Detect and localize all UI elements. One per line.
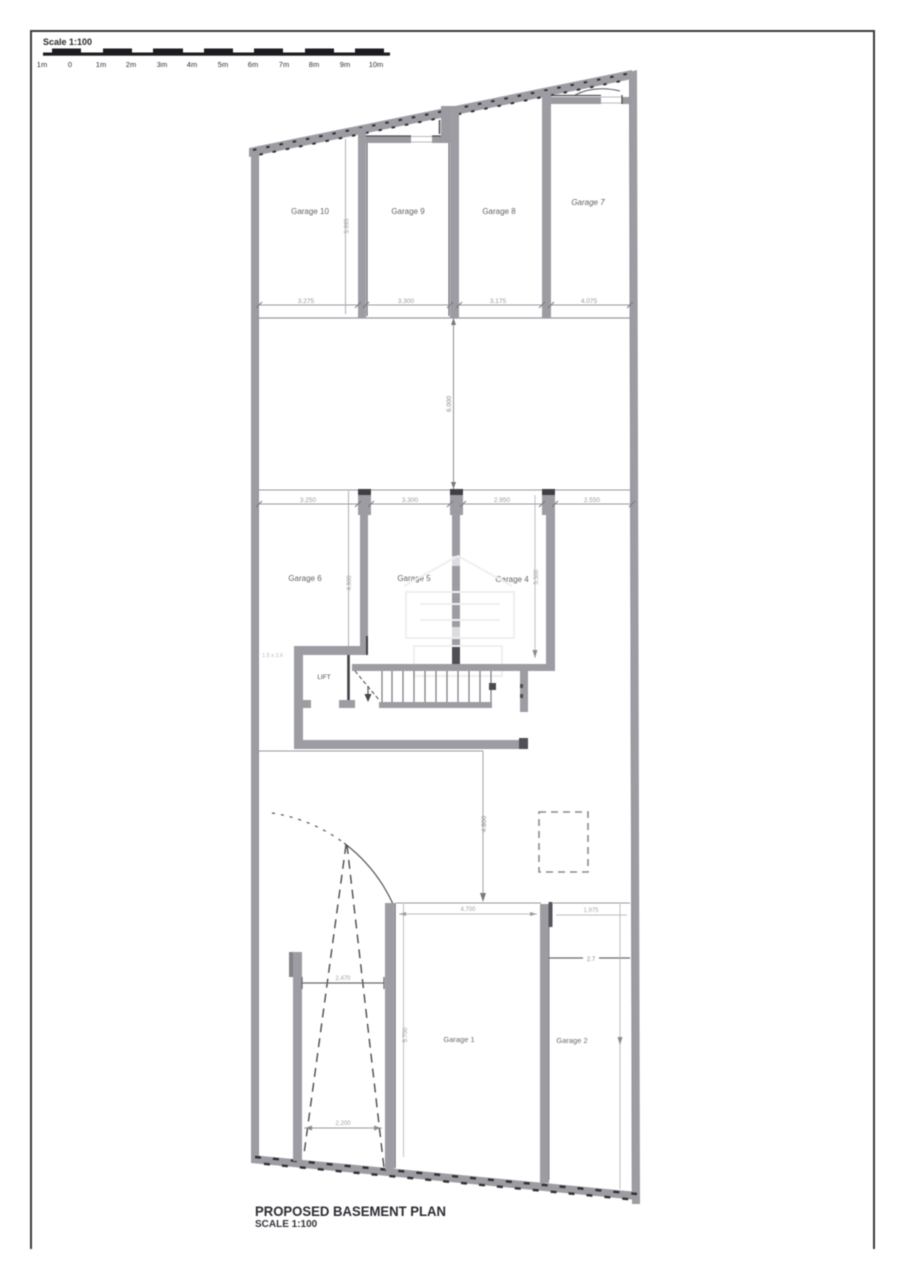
- svg-text:Garage 5: Garage 5: [397, 574, 431, 583]
- svg-text:1.975: 1.975: [583, 908, 599, 914]
- svg-text:2.470: 2.470: [335, 976, 351, 982]
- svg-text:2.7: 2.7: [587, 957, 596, 963]
- svg-text:SCALE 1:100: SCALE 1:100: [255, 1219, 318, 1230]
- svg-text:0: 0: [68, 60, 72, 69]
- svg-text:8m: 8m: [309, 60, 319, 69]
- svg-text:2.550: 2.550: [584, 497, 601, 504]
- svg-text:10m: 10m: [369, 60, 384, 69]
- svg-text:3.175: 3.175: [490, 298, 507, 305]
- svg-text:3m: 3m: [157, 60, 167, 69]
- svg-text:4.075: 4.075: [581, 298, 598, 305]
- svg-text:5.700: 5.700: [403, 1027, 409, 1043]
- svg-text:Garage 1: Garage 1: [443, 1035, 474, 1044]
- svg-text:6.000: 6.000: [446, 395, 453, 412]
- svg-text:Garage 7: Garage 7: [571, 198, 605, 207]
- svg-text:Garage 6: Garage 6: [288, 574, 322, 583]
- svg-text:LIFT: LIFT: [317, 674, 330, 681]
- svg-text:Scale 1:100: Scale 1:100: [43, 37, 92, 47]
- svg-text:Garage 10: Garage 10: [291, 207, 329, 216]
- svg-text:6m: 6m: [248, 60, 258, 69]
- svg-text:1m: 1m: [96, 60, 106, 69]
- svg-text:3.300: 3.300: [402, 497, 419, 504]
- svg-text:5.995: 5.995: [345, 218, 351, 234]
- svg-text:Garage 2: Garage 2: [556, 1036, 587, 1045]
- svg-text:4.700: 4.700: [460, 907, 476, 913]
- svg-text:3.250: 3.250: [300, 497, 317, 504]
- svg-text:4m: 4m: [187, 60, 197, 69]
- svg-text:Garage 9: Garage 9: [391, 207, 425, 216]
- svg-text:7m: 7m: [279, 60, 289, 69]
- svg-text:4.800: 4.800: [481, 815, 488, 832]
- svg-text:5m: 5m: [218, 60, 228, 69]
- svg-text:4.900: 4.900: [347, 575, 353, 591]
- svg-text:2.200: 2.200: [335, 1121, 351, 1127]
- svg-text:9m: 9m: [340, 60, 350, 69]
- svg-text:1m: 1m: [37, 60, 47, 69]
- svg-text:1.5 x 2.6: 1.5 x 2.6: [262, 653, 283, 659]
- svg-text:PROPOSED BASEMENT PLAN: PROPOSED BASEMENT PLAN: [255, 1203, 446, 1219]
- svg-text:5.500: 5.500: [534, 569, 540, 585]
- svg-text:Garage 8: Garage 8: [482, 207, 516, 216]
- svg-text:2m: 2m: [126, 60, 136, 69]
- svg-text:3.275: 3.275: [298, 298, 315, 305]
- svg-text:2.950: 2.950: [494, 497, 511, 504]
- svg-text:3.300: 3.300: [398, 298, 415, 305]
